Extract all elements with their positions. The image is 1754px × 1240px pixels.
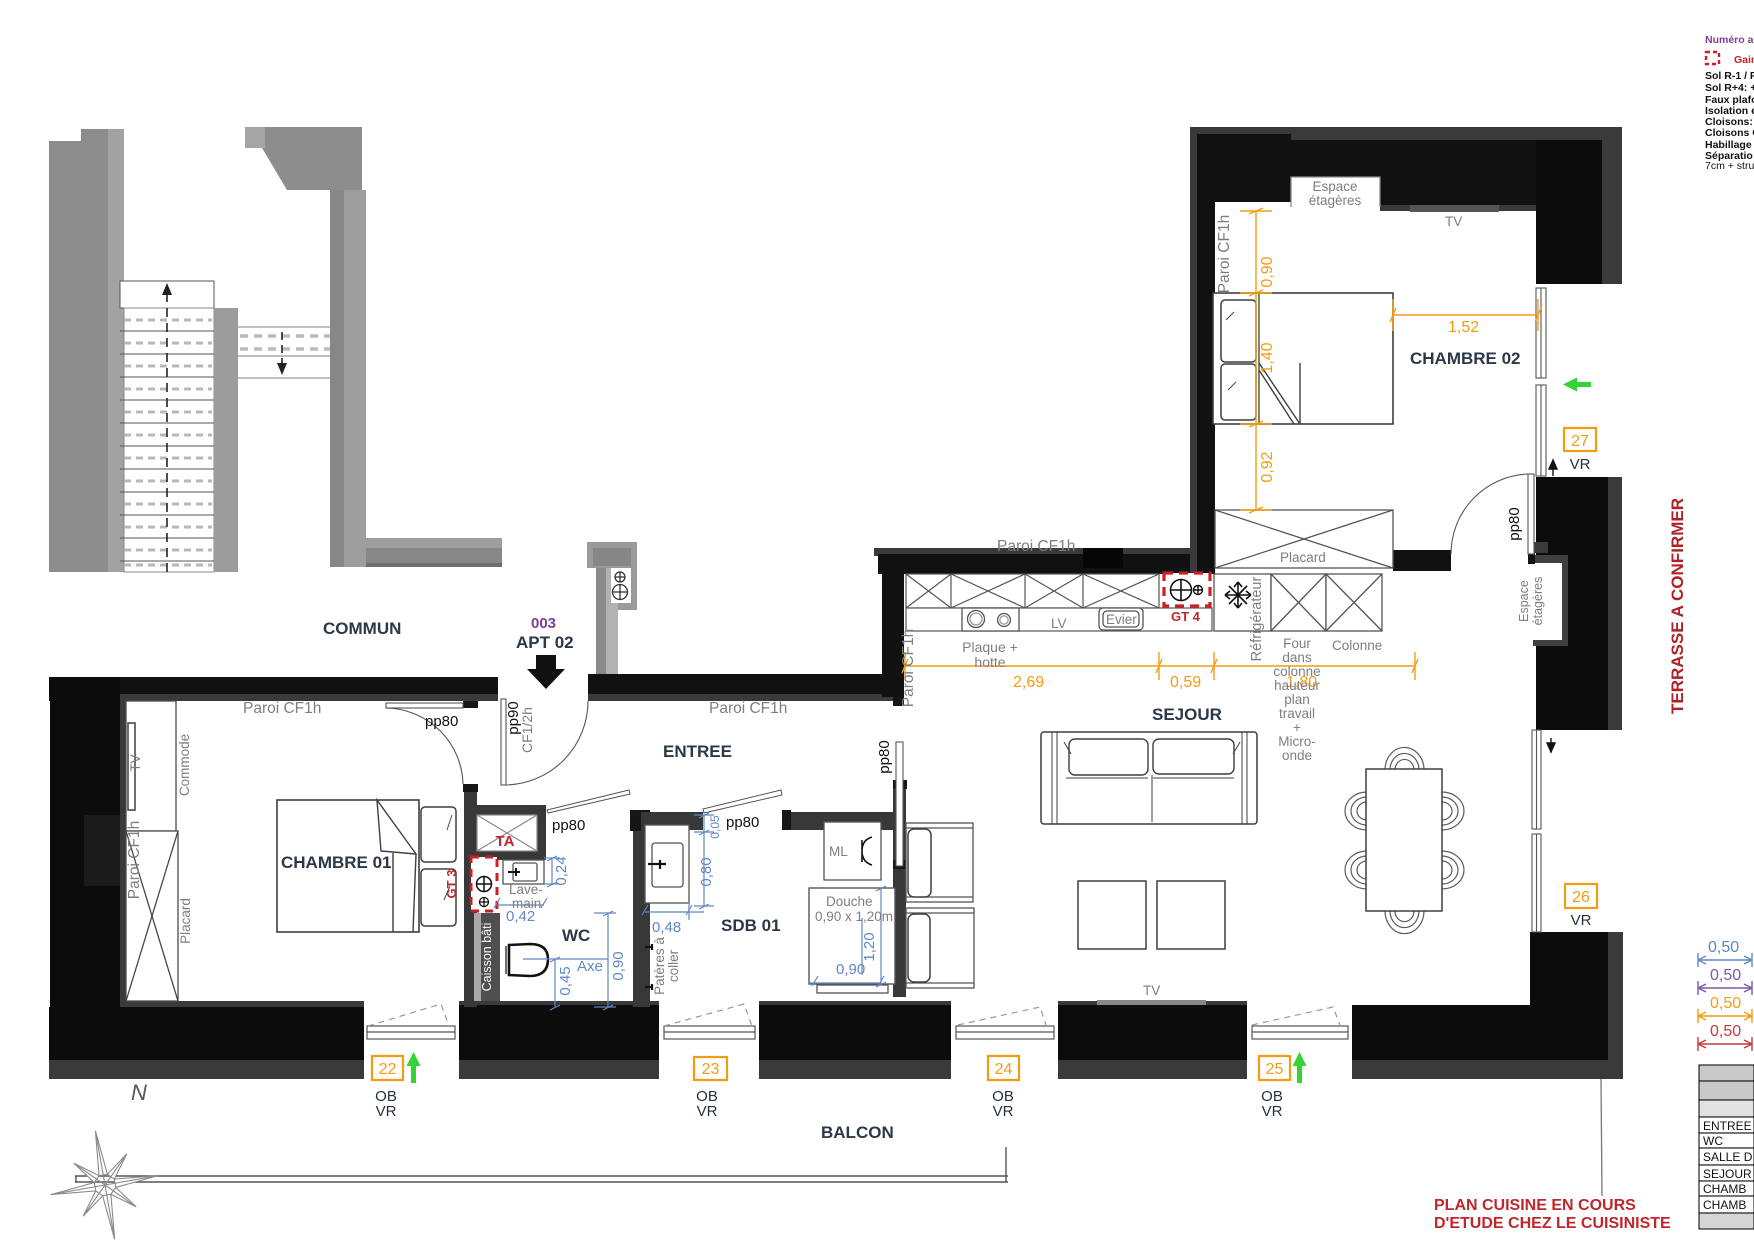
svg-text:SEJOUR: SEJOUR: [1703, 1167, 1752, 1181]
svg-text:VR: VR: [697, 1103, 718, 1120]
svg-text:25: 25: [1266, 1061, 1284, 1078]
svg-text:Numéro a: Numéro a: [1705, 34, 1754, 46]
svg-text:Cloisons C: Cloisons C: [1705, 127, 1754, 139]
svg-text:CHAMBRE 02: CHAMBRE 02: [1410, 349, 1521, 368]
svg-text:0,50: 0,50: [1710, 1023, 1741, 1040]
svg-text:PLAN CUISINE EN COURS: PLAN CUISINE EN COURS: [1434, 1197, 1636, 1214]
svg-text:0,90: 0,90: [836, 961, 865, 978]
svg-text:Gain: Gain: [1734, 54, 1754, 66]
svg-text:1,40: 1,40: [1259, 342, 1276, 373]
svg-text:1,52: 1,52: [1448, 319, 1479, 336]
svg-text:7cm + stru: 7cm + stru: [1705, 160, 1754, 172]
svg-text:Paroi CF1h: Paroi CF1h: [997, 538, 1075, 555]
svg-text:Placard: Placard: [1280, 550, 1326, 565]
svg-text:hotte: hotte: [974, 654, 1005, 670]
svg-text:étagères: étagères: [1531, 577, 1545, 626]
svg-text:VR: VR: [376, 1103, 397, 1120]
svg-text:Placard: Placard: [178, 898, 193, 944]
svg-text:Lave-: Lave-: [509, 882, 543, 897]
svg-text:VR: VR: [1262, 1103, 1283, 1120]
svg-text:Douche: Douche: [826, 894, 873, 909]
svg-text:0,90: 0,90: [1259, 256, 1276, 287]
svg-text:Axe: Axe: [577, 958, 603, 975]
svg-text:Four: Four: [1283, 636, 1311, 651]
svg-text:CHAMB: CHAMB: [1703, 1182, 1746, 1196]
svg-text:pp80: pp80: [726, 814, 759, 831]
svg-text:TA: TA: [496, 833, 515, 850]
svg-text:COMMUN: COMMUN: [323, 619, 401, 638]
svg-text:Paroi CF1h: Paroi CF1h: [709, 700, 787, 717]
svg-text:ML: ML: [829, 844, 848, 859]
svg-text:TV: TV: [1445, 214, 1462, 229]
svg-text:ENTREE: ENTREE: [663, 742, 732, 761]
svg-text:2,69: 2,69: [1013, 674, 1044, 691]
svg-text:Paroi CF1h: Paroi CF1h: [900, 629, 917, 707]
svg-text:LV: LV: [1051, 616, 1067, 631]
svg-text:1,20: 1,20: [861, 932, 878, 961]
svg-text:Micro-: Micro-: [1278, 734, 1316, 749]
svg-text:pp80: pp80: [1506, 507, 1523, 540]
svg-text:VR: VR: [993, 1103, 1014, 1120]
svg-text:plan: plan: [1284, 692, 1310, 707]
svg-text:0,48: 0,48: [652, 919, 681, 936]
svg-text:pp80: pp80: [552, 817, 585, 834]
svg-text:SALLE D: SALLE D: [1703, 1150, 1753, 1164]
svg-text:VR: VR: [1570, 456, 1591, 473]
svg-text:0,90 x 1,20m: 0,90 x 1,20m: [815, 909, 893, 924]
svg-text:Paroi CF1h: Paroi CF1h: [1216, 215, 1233, 293]
svg-text:CHAMBRE 01: CHAMBRE 01: [281, 853, 392, 872]
svg-text:VR: VR: [1571, 912, 1592, 929]
svg-text:Patères à: Patères à: [652, 937, 667, 995]
svg-text:dans: dans: [1282, 650, 1312, 665]
svg-text:0,92: 0,92: [1259, 451, 1276, 482]
svg-text:0,45: 0,45: [557, 966, 574, 995]
svg-text:Réfrigérateur: Réfrigérateur: [1249, 577, 1265, 662]
svg-text:pp80: pp80: [425, 713, 458, 730]
svg-text:Paroi CF1h: Paroi CF1h: [126, 821, 143, 899]
svg-text:Evier: Evier: [1106, 612, 1137, 627]
svg-text:hauteur: hauteur: [1274, 678, 1320, 693]
svg-text:TV: TV: [1143, 983, 1160, 998]
svg-text:27: 27: [1571, 433, 1589, 450]
svg-text:étagères: étagères: [1309, 193, 1362, 208]
svg-text:0,59: 0,59: [1170, 674, 1201, 691]
svg-text:onde: onde: [1282, 748, 1312, 763]
svg-text:24: 24: [995, 1061, 1013, 1078]
svg-text:GT 4: GT 4: [1171, 609, 1201, 624]
svg-text:22: 22: [379, 1061, 397, 1078]
svg-text:GT 3: GT 3: [444, 870, 459, 899]
svg-text:WC: WC: [1703, 1134, 1723, 1148]
svg-text:0,50: 0,50: [1710, 995, 1741, 1012]
svg-text:ENTREE: ENTREE: [1703, 1119, 1752, 1133]
svg-text:Caisson bâti: Caisson bâti: [480, 923, 494, 992]
svg-text:main: main: [512, 896, 541, 911]
svg-text:BALCON: BALCON: [821, 1123, 894, 1142]
svg-text:TV: TV: [128, 754, 143, 771]
svg-text:CF1/2h: CF1/2h: [519, 707, 535, 753]
svg-text:Sol R-1 / R: Sol R-1 / R: [1705, 70, 1754, 82]
svg-text:0,05: 0,05: [708, 815, 722, 839]
svg-text:D'ETUDE CHEZ LE CUISINISTE: D'ETUDE CHEZ LE CUISINISTE: [1434, 1215, 1671, 1232]
svg-text:SDB 01: SDB 01: [721, 916, 781, 935]
svg-text:N: N: [131, 1080, 147, 1105]
svg-text:0,90: 0,90: [610, 951, 627, 980]
svg-text:0,50: 0,50: [1708, 939, 1739, 956]
svg-text:Sol R+4: +: Sol R+4: +: [1705, 82, 1754, 94]
svg-text:0,50: 0,50: [1710, 967, 1741, 984]
svg-text:TERRASSE A CONFIRMER: TERRASSE A CONFIRMER: [1668, 498, 1687, 714]
svg-text:APT 02: APT 02: [516, 633, 574, 652]
svg-text:Commode: Commode: [177, 734, 192, 796]
svg-text:travail: travail: [1279, 706, 1315, 721]
svg-text:Paroi CF1h: Paroi CF1h: [243, 700, 321, 717]
svg-text:pp80: pp80: [876, 740, 893, 773]
svg-text:CHAMB: CHAMB: [1703, 1198, 1746, 1212]
svg-text:Espace: Espace: [1517, 580, 1531, 622]
svg-text:colonne: colonne: [1273, 664, 1320, 679]
svg-text:Colonne: Colonne: [1332, 638, 1382, 653]
svg-text:0,80: 0,80: [698, 857, 715, 886]
svg-text:SEJOUR: SEJOUR: [1152, 705, 1222, 724]
svg-text:0,24: 0,24: [553, 856, 570, 885]
svg-text:WC: WC: [562, 926, 590, 945]
svg-text:23: 23: [702, 1061, 720, 1078]
svg-text:coller: coller: [666, 949, 681, 982]
svg-text:Espace: Espace: [1312, 179, 1357, 194]
svg-text:003: 003: [531, 615, 556, 632]
svg-text:+: +: [1293, 720, 1301, 735]
svg-text:Plaque +: Plaque +: [962, 639, 1018, 655]
svg-text:26: 26: [1572, 889, 1590, 906]
